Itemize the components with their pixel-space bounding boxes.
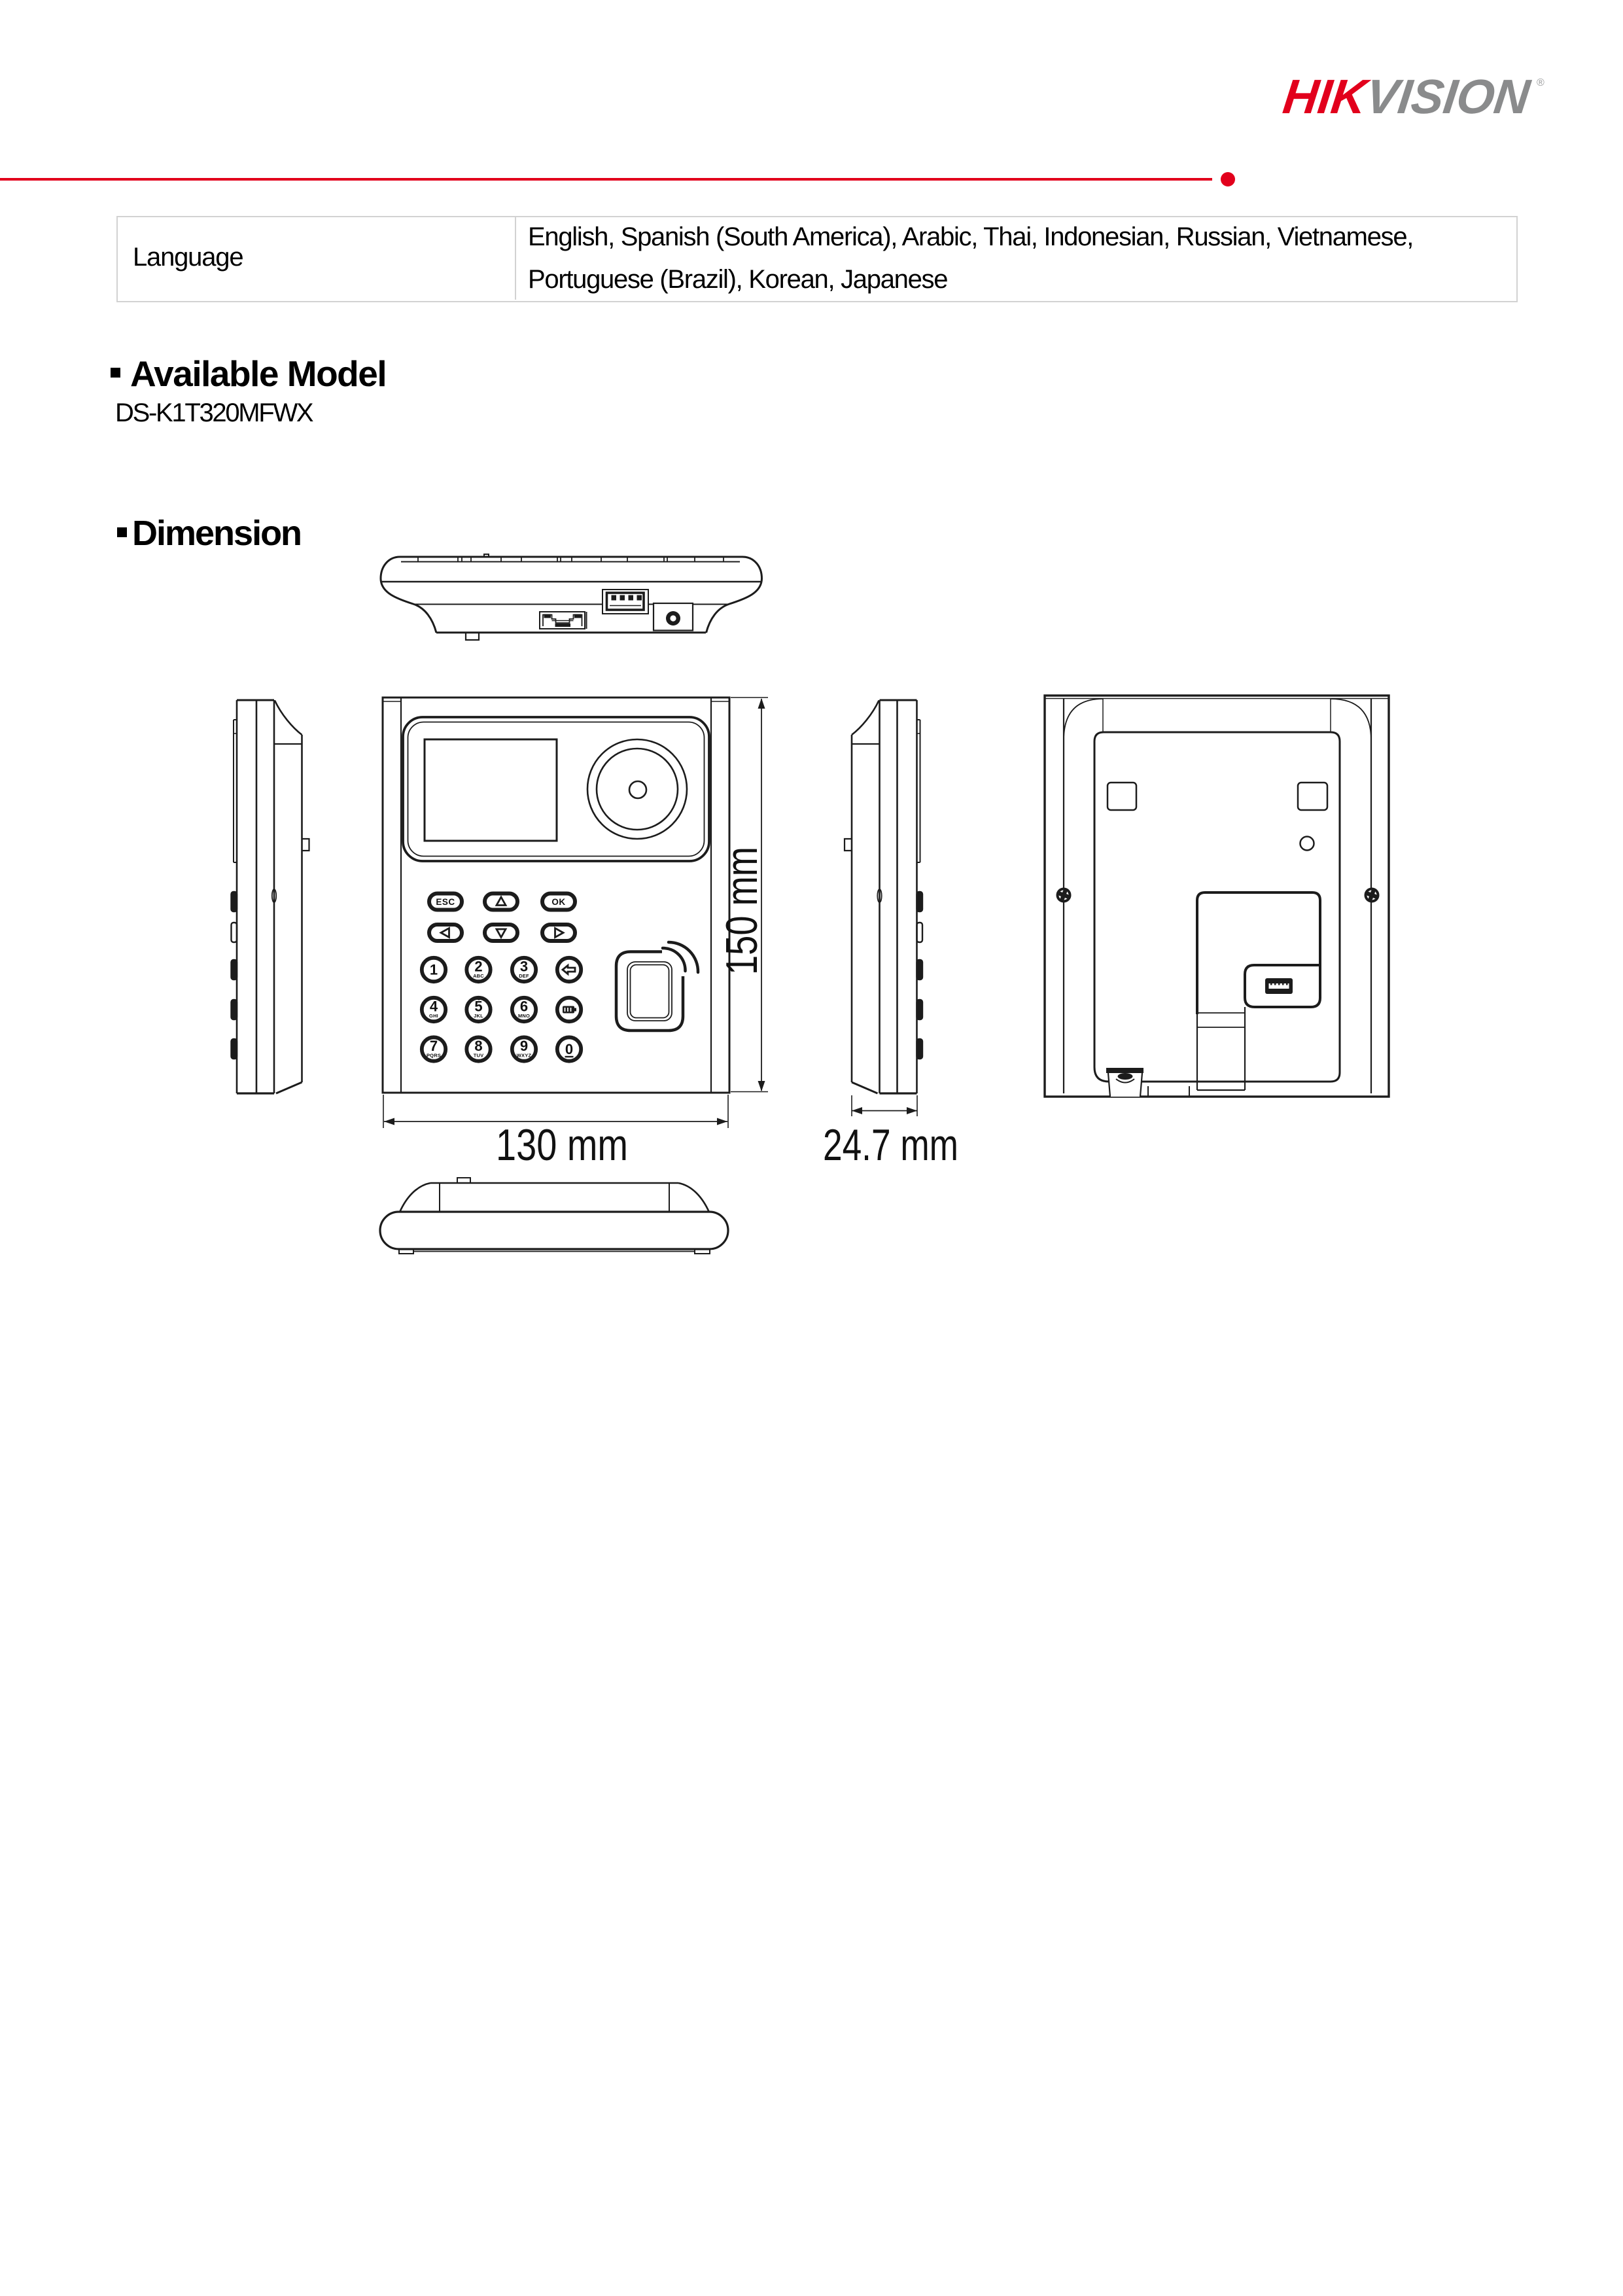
- svg-text:130 mm: 130 mm: [496, 1120, 628, 1170]
- svg-text:9: 9: [520, 1038, 528, 1054]
- svg-text:3: 3: [520, 959, 528, 975]
- svg-text:ESC: ESC: [436, 897, 455, 907]
- svg-text:DEF: DEF: [519, 973, 529, 979]
- svg-text:ABC: ABC: [473, 973, 484, 979]
- svg-text:WXYZ: WXYZ: [517, 1053, 532, 1059]
- svg-text:PQRS: PQRS: [427, 1053, 441, 1059]
- svg-text:0: 0: [565, 1041, 573, 1057]
- svg-text:GHI: GHI: [429, 1013, 438, 1019]
- svg-text:JKL: JKL: [474, 1013, 483, 1019]
- svg-text:150 mm: 150 mm: [717, 847, 767, 975]
- svg-text:OK: OK: [551, 897, 565, 907]
- svg-text:MNO: MNO: [518, 1013, 530, 1019]
- svg-text:2: 2: [474, 959, 482, 975]
- svg-text:24.7 mm: 24.7 mm: [823, 1120, 958, 1170]
- svg-text:8: 8: [474, 1038, 482, 1054]
- svg-text:6: 6: [520, 998, 528, 1015]
- svg-text:TUV: TUV: [474, 1053, 484, 1059]
- svg-text:1: 1: [430, 962, 438, 978]
- svg-text:7: 7: [430, 1038, 438, 1054]
- svg-text:4: 4: [430, 998, 438, 1015]
- svg-text:5: 5: [474, 998, 482, 1015]
